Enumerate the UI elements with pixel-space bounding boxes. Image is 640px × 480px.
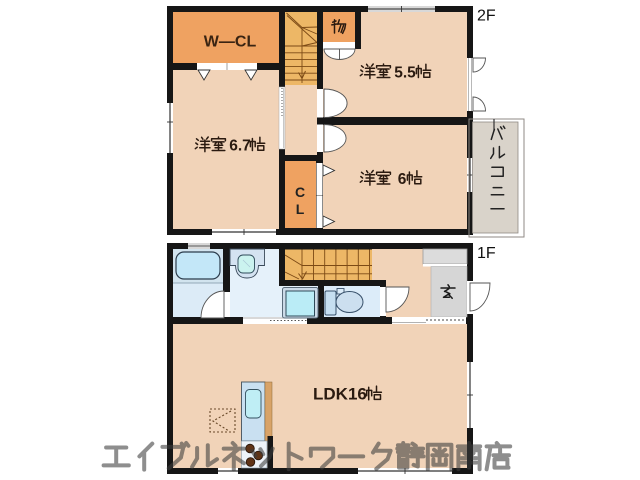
svg-text:W—CL: W—CL	[204, 34, 257, 51]
svg-text:6: 6	[398, 171, 407, 188]
svg-text:2F: 2F	[477, 8, 496, 25]
svg-text:5.5: 5.5	[394, 65, 416, 82]
svg-text:L: L	[296, 201, 305, 217]
svg-text:6.7: 6.7	[229, 138, 251, 155]
svg-text:LDK16: LDK16	[313, 385, 367, 404]
svg-text:C: C	[295, 184, 305, 200]
svg-text:1F: 1F	[477, 245, 496, 262]
